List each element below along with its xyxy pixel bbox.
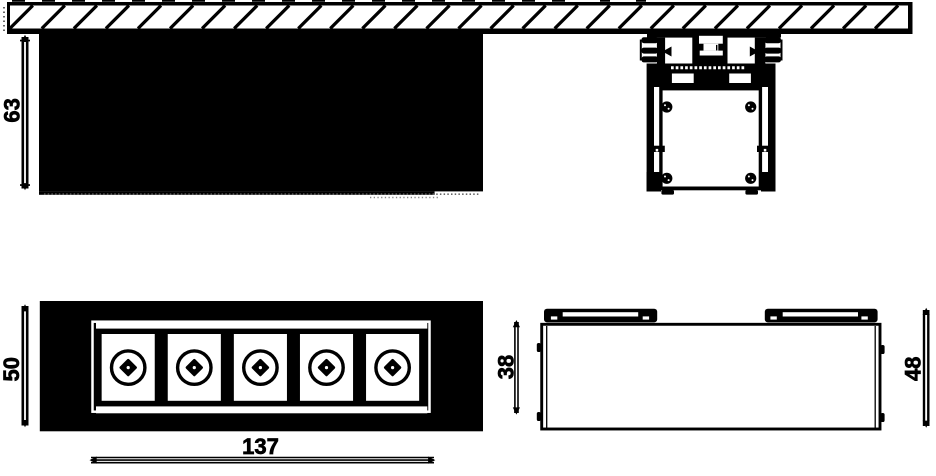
svg-text:63: 63	[0, 98, 24, 122]
svg-text:48: 48	[901, 357, 926, 381]
svg-text:50: 50	[0, 357, 24, 381]
svg-text:137: 137	[242, 434, 279, 459]
svg-text:38: 38	[493, 355, 518, 379]
